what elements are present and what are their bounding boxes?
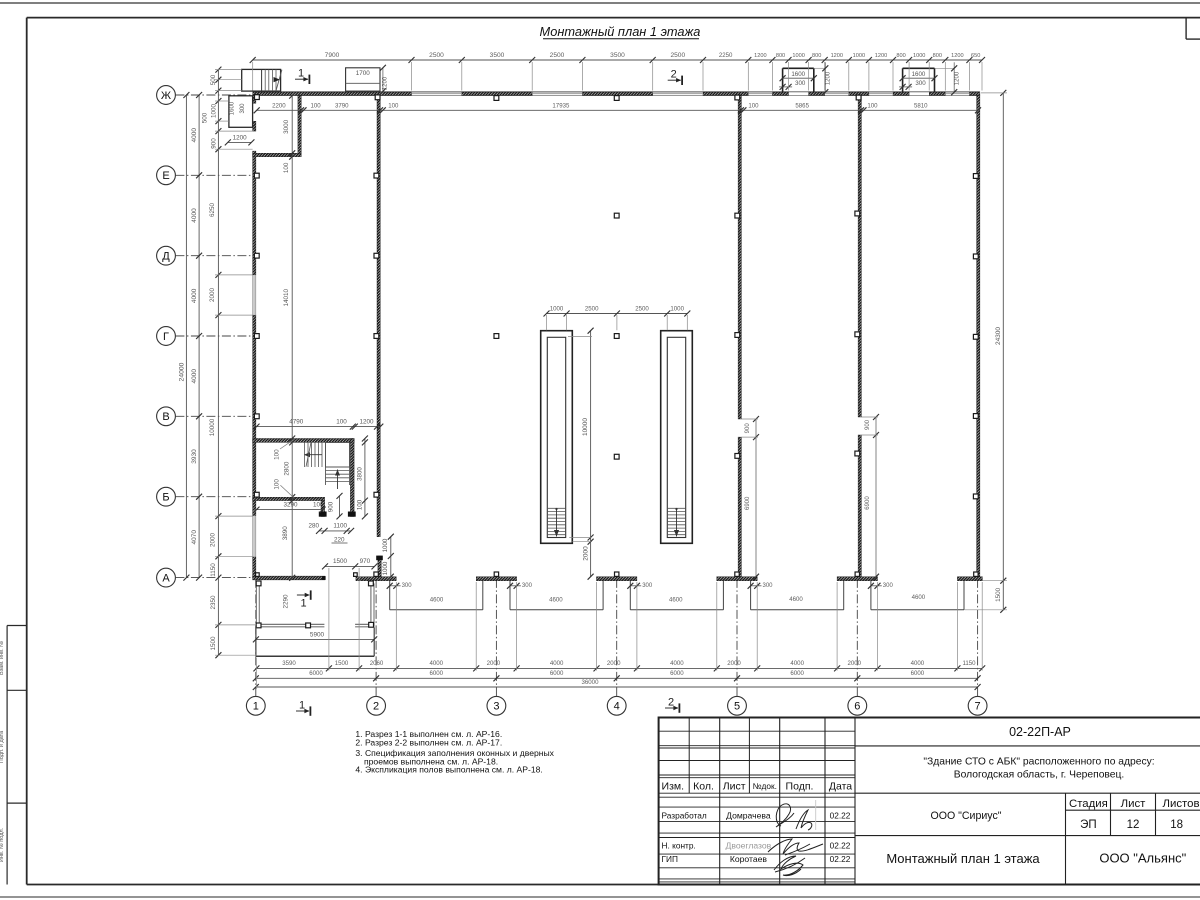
svg-text:900: 900 — [328, 501, 335, 512]
svg-text:Разработал: Разработал — [662, 810, 707, 820]
svg-text:6900: 6900 — [865, 496, 871, 510]
svg-text:4000: 4000 — [790, 660, 804, 667]
svg-text:6000: 6000 — [430, 670, 444, 677]
svg-text:Стадия: Стадия — [1069, 798, 1108, 810]
svg-text:Подп.: Подп. — [786, 781, 814, 793]
svg-text:2500: 2500 — [635, 306, 649, 313]
svg-text:650: 650 — [971, 53, 980, 59]
svg-text:900: 900 — [745, 423, 751, 434]
svg-text:А: А — [162, 573, 170, 585]
svg-text:1150: 1150 — [210, 563, 217, 577]
svg-text:2500: 2500 — [670, 52, 685, 59]
svg-text:300: 300 — [795, 80, 806, 87]
svg-text:6000: 6000 — [309, 670, 323, 677]
svg-text:1500: 1500 — [995, 587, 1002, 602]
svg-text:ООО "Альянс": ООО "Альянс" — [1099, 850, 1186, 865]
svg-text:5865: 5865 — [795, 102, 809, 109]
svg-text:Д: Д — [162, 251, 170, 263]
svg-text:280: 280 — [309, 523, 320, 530]
svg-text:Взам. инв. №: Взам. инв. № — [0, 641, 5, 675]
svg-text:"Здание СТО с АБК" расположенн: "Здание СТО с АБК" расположенного по адр… — [923, 757, 1154, 768]
svg-text:12: 12 — [1127, 819, 1140, 831]
svg-text:1200: 1200 — [233, 134, 248, 141]
svg-text:Вологодская область, г. Черепо: Вологодская область, г. Череповец. — [954, 769, 1125, 781]
svg-text:2000: 2000 — [487, 660, 501, 667]
svg-text:100: 100 — [388, 102, 399, 109]
svg-text:4000: 4000 — [191, 128, 198, 143]
svg-text:1150: 1150 — [962, 660, 976, 667]
svg-text:100: 100 — [283, 162, 290, 173]
svg-text:800: 800 — [812, 53, 821, 59]
svg-text:3890: 3890 — [282, 526, 289, 541]
svg-text:100: 100 — [311, 102, 322, 109]
svg-text:4600: 4600 — [789, 596, 803, 603]
svg-text:3000: 3000 — [283, 119, 290, 134]
svg-text:2000: 2000 — [848, 660, 862, 667]
svg-text:300: 300 — [642, 583, 653, 589]
svg-text:24000: 24000 — [178, 362, 185, 381]
svg-text:4600: 4600 — [669, 597, 683, 604]
svg-text:100: 100 — [274, 479, 281, 490]
svg-text:100: 100 — [336, 418, 347, 425]
svg-text:6000: 6000 — [790, 670, 804, 677]
svg-text:1000: 1000 — [792, 53, 804, 59]
svg-text:17935: 17935 — [552, 102, 570, 109]
svg-text:4000: 4000 — [430, 660, 444, 667]
svg-text:Изм.: Изм. — [662, 781, 685, 793]
svg-text:4000: 4000 — [670, 660, 684, 667]
svg-text:Б: Б — [162, 492, 169, 504]
svg-text:Подп. и дата: Подп. и дата — [0, 730, 5, 763]
svg-text:ГИП: ГИП — [662, 854, 678, 864]
svg-text:800: 800 — [896, 53, 905, 59]
svg-text:7900: 7900 — [325, 52, 340, 59]
svg-text:4000: 4000 — [191, 288, 198, 303]
svg-text:4000: 4000 — [911, 660, 925, 667]
svg-text:1700: 1700 — [356, 70, 371, 77]
svg-text:1000: 1000 — [913, 53, 925, 59]
svg-text:4600: 4600 — [912, 594, 926, 601]
svg-text:2290: 2290 — [283, 594, 290, 609]
svg-text:2350: 2350 — [210, 595, 217, 610]
svg-text:4790: 4790 — [289, 418, 304, 425]
svg-text:14010: 14010 — [283, 288, 290, 306]
svg-text:2000: 2000 — [582, 546, 589, 561]
svg-text:1200: 1200 — [875, 53, 887, 59]
svg-text:800: 800 — [933, 53, 942, 59]
svg-text:10000: 10000 — [582, 418, 589, 436]
svg-text:1500: 1500 — [333, 558, 348, 565]
svg-text:02-22П-АР: 02-22П-АР — [1009, 725, 1071, 739]
svg-text:№док.: №док. — [753, 781, 777, 791]
svg-text:4. Экспликация полов выполнена: 4. Экспликация полов выполнена см. л. АР… — [355, 765, 542, 775]
svg-text:2060: 2060 — [370, 660, 384, 667]
svg-text:300: 300 — [883, 583, 894, 589]
svg-text:10000: 10000 — [209, 418, 216, 436]
svg-text:Монтажный план 1 этажа: Монтажный план 1 этажа — [540, 24, 701, 39]
svg-text:100: 100 — [867, 102, 878, 109]
svg-text:1200: 1200 — [831, 53, 843, 59]
svg-text:6000: 6000 — [550, 670, 564, 677]
svg-text:1500: 1500 — [335, 660, 349, 667]
svg-text:4070: 4070 — [191, 530, 198, 545]
svg-text:02.22: 02.22 — [830, 854, 851, 864]
svg-text:Двоеглазов: Двоеглазов — [726, 840, 772, 850]
svg-text:4000: 4000 — [191, 208, 198, 223]
svg-text:2000: 2000 — [727, 660, 741, 667]
svg-text:6900: 6900 — [745, 496, 751, 510]
svg-text:100: 100 — [357, 499, 364, 510]
svg-text:300: 300 — [240, 103, 246, 114]
svg-text:1: 1 — [253, 701, 259, 713]
svg-text:1: 1 — [301, 598, 307, 610]
svg-text:2000: 2000 — [210, 533, 217, 548]
svg-text:2000: 2000 — [607, 660, 621, 667]
svg-text:1600: 1600 — [791, 71, 805, 78]
svg-text:300: 300 — [915, 80, 926, 87]
svg-text:7: 7 — [975, 701, 981, 713]
svg-text:6000: 6000 — [911, 670, 925, 677]
svg-text:1200: 1200 — [754, 53, 766, 59]
svg-text:5: 5 — [734, 701, 740, 713]
svg-text:2800: 2800 — [283, 461, 290, 476]
svg-text:1200: 1200 — [825, 71, 831, 85]
svg-text:1: 1 — [298, 68, 304, 80]
svg-text:1000: 1000 — [550, 306, 564, 313]
svg-text:В: В — [162, 411, 169, 423]
svg-text:Ж: Ж — [161, 90, 171, 102]
svg-text:Лист: Лист — [1121, 798, 1147, 810]
svg-text:3: 3 — [493, 701, 499, 713]
svg-text:1100: 1100 — [333, 523, 347, 530]
svg-text:Домрачева: Домрачева — [726, 810, 771, 820]
svg-text:970: 970 — [360, 558, 371, 565]
svg-text:300: 300 — [402, 583, 413, 589]
svg-text:1200: 1200 — [951, 53, 963, 59]
svg-text:1000: 1000 — [382, 538, 389, 552]
svg-text:1: 1 — [299, 699, 305, 711]
svg-text:Е: Е — [162, 170, 169, 182]
svg-text:24300: 24300 — [995, 327, 1002, 345]
svg-text:3800: 3800 — [357, 467, 364, 481]
svg-text:5810: 5810 — [914, 102, 928, 109]
svg-text:300: 300 — [522, 583, 533, 589]
svg-text:2: 2 — [671, 69, 677, 81]
svg-text:Инв. № подл.: Инв. № подл. — [0, 827, 5, 862]
svg-text:02.22: 02.22 — [830, 840, 851, 850]
svg-text:1000: 1000 — [670, 306, 684, 313]
svg-text:500: 500 — [202, 112, 209, 123]
svg-text:4000: 4000 — [191, 369, 198, 384]
svg-text:Монтажный план 1 этажа: Монтажный план 1 этажа — [886, 851, 1040, 866]
svg-text:Листов: Листов — [1162, 798, 1199, 810]
svg-text:1200: 1200 — [954, 71, 960, 85]
svg-text:Г: Г — [163, 331, 169, 343]
svg-text:100: 100 — [748, 102, 759, 109]
svg-text:1600: 1600 — [912, 71, 926, 78]
svg-text:100: 100 — [274, 449, 281, 460]
svg-text:1600: 1600 — [230, 101, 236, 115]
svg-text:2250: 2250 — [719, 52, 733, 59]
svg-text:4600: 4600 — [549, 597, 563, 604]
svg-text:100: 100 — [313, 501, 324, 508]
svg-text:1000: 1000 — [382, 561, 389, 575]
svg-text:5900: 5900 — [310, 631, 325, 638]
svg-text:Коротаев: Коротаев — [730, 854, 768, 864]
svg-text:4: 4 — [614, 701, 620, 713]
svg-text:3790: 3790 — [335, 102, 349, 109]
svg-text:900: 900 — [210, 138, 217, 149]
svg-text:3930: 3930 — [191, 449, 198, 464]
svg-text:1200: 1200 — [383, 76, 389, 90]
svg-text:2000: 2000 — [209, 288, 216, 303]
svg-text:220: 220 — [334, 537, 345, 544]
svg-text:Кол.: Кол. — [693, 781, 714, 793]
svg-text:1000: 1000 — [853, 53, 865, 59]
svg-text:ЭП: ЭП — [1080, 819, 1097, 831]
svg-text:3500: 3500 — [610, 52, 625, 59]
svg-text:3500: 3500 — [490, 52, 505, 59]
svg-text:2: 2 — [668, 696, 674, 708]
svg-text:300: 300 — [762, 583, 773, 589]
svg-text:2500: 2500 — [429, 52, 444, 59]
svg-text:3290: 3290 — [283, 501, 298, 508]
svg-text:36000: 36000 — [582, 679, 600, 686]
svg-text:1000: 1000 — [210, 104, 217, 119]
svg-text:2200: 2200 — [272, 102, 286, 109]
svg-text:2500: 2500 — [550, 52, 565, 59]
svg-text:2500: 2500 — [585, 306, 599, 313]
svg-text:Дата: Дата — [829, 781, 852, 793]
svg-text:1500: 1500 — [210, 636, 217, 651]
svg-text:Н. контр.: Н. контр. — [662, 840, 696, 850]
svg-text:4000: 4000 — [550, 660, 564, 667]
svg-text:Лист: Лист — [723, 781, 746, 793]
svg-text:6250: 6250 — [209, 203, 216, 218]
svg-text:6: 6 — [854, 701, 860, 713]
svg-text:3590: 3590 — [282, 660, 296, 667]
svg-text:2: 2 — [373, 701, 379, 713]
svg-text:800: 800 — [776, 53, 785, 59]
svg-text:02.22: 02.22 — [830, 810, 851, 820]
svg-text:6000: 6000 — [670, 670, 684, 677]
svg-text:2. Разрез 2-2 выполнен см. л.: 2. Разрез 2-2 выполнен см. л. АР-17. — [355, 738, 502, 748]
svg-text:1200: 1200 — [359, 418, 374, 425]
svg-text:4600: 4600 — [430, 597, 444, 604]
svg-text:900: 900 — [865, 419, 871, 430]
svg-text:18: 18 — [1170, 819, 1183, 831]
svg-text:ООО "Сириус": ООО "Сириус" — [930, 810, 1001, 822]
